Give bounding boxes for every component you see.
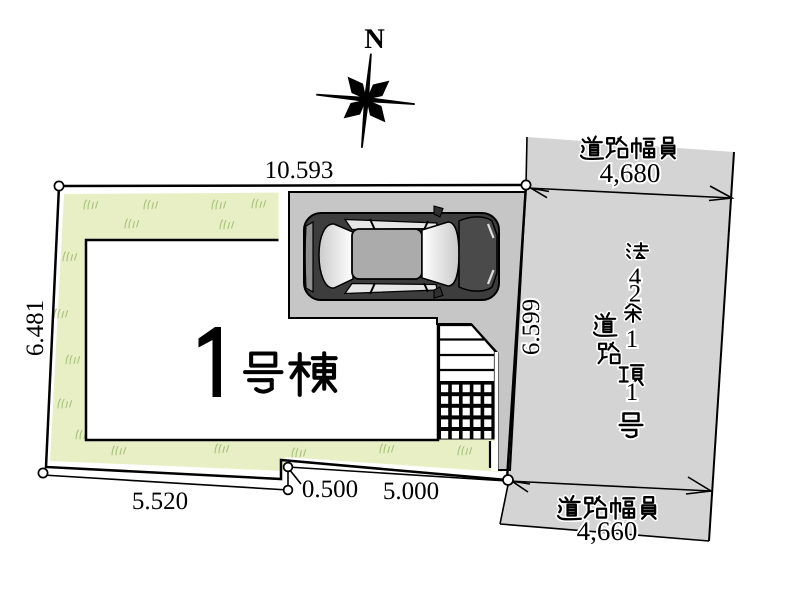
svg-text:6.481: 6.481 — [22, 300, 49, 356]
svg-text:6.599: 6.599 — [518, 299, 545, 355]
svg-text:1: 1 — [626, 379, 639, 406]
svg-text:N: N — [364, 24, 385, 55]
svg-text:10.593: 10.593 — [265, 157, 334, 184]
svg-text:1: 1 — [626, 326, 639, 353]
svg-text:0.500: 0.500 — [302, 476, 358, 503]
svg-text:5.000: 5.000 — [383, 478, 439, 505]
svg-text:2: 2 — [629, 281, 642, 308]
svg-text:4,660: 4,660 — [577, 516, 638, 546]
svg-text:5.520: 5.520 — [132, 488, 188, 515]
svg-text:4,680: 4,680 — [600, 158, 661, 188]
